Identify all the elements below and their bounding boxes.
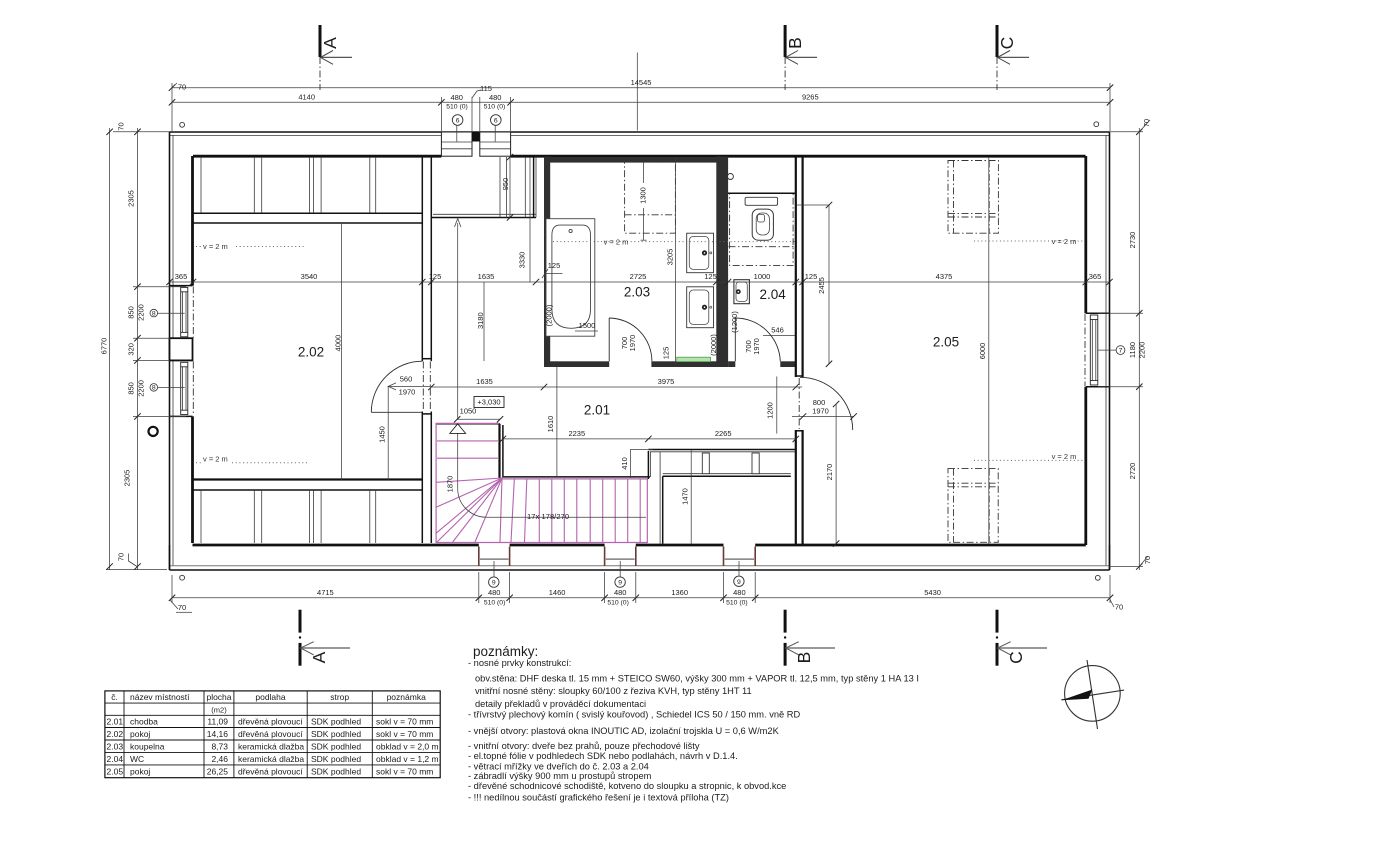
svg-text:2.05: 2.05: [933, 335, 959, 350]
svg-text:C: C: [1006, 651, 1026, 664]
svg-text:5430: 5430: [924, 588, 941, 597]
svg-text:850: 850: [127, 306, 136, 319]
svg-text:- třívrstvý plechový komín (: - třívrstvý plechový komín ( svislý kouř…: [468, 710, 801, 720]
svg-text:14,16: 14,16: [207, 729, 229, 739]
svg-text:obklad v = 1,2 m: obklad v = 1,2 m: [376, 754, 439, 764]
svg-text:2235: 2235: [568, 429, 585, 438]
svg-text:1610: 1610: [546, 416, 555, 433]
svg-text:2200: 2200: [137, 380, 146, 397]
svg-text:1870: 1870: [446, 476, 455, 493]
svg-text:sokl v = 70 mm: sokl v = 70 mm: [376, 717, 433, 727]
svg-text:podlaha: podlaha: [255, 692, 286, 702]
svg-text:- dřevěné schodnicové schodišt: - dřevěné schodnicové schodiště, kotveno…: [468, 781, 786, 791]
svg-text:1970: 1970: [628, 335, 637, 352]
svg-text:125: 125: [805, 272, 818, 281]
svg-text:sokl v = 70 mm: sokl v = 70 mm: [376, 767, 433, 777]
svg-text:480: 480: [488, 588, 501, 597]
svg-text:560: 560: [400, 375, 413, 384]
svg-text:6: 6: [456, 118, 460, 125]
svg-text:1200: 1200: [765, 402, 774, 419]
svg-text:480: 480: [489, 93, 502, 102]
svg-text:850: 850: [127, 382, 136, 395]
svg-text:- zábradlí výšky 900 mm u pro: - zábradlí výšky 900 mm u prostupů strop…: [468, 771, 652, 781]
svg-text:- vnitřní otvory: dveře bez pr: - vnitřní otvory: dveře bez prahů, pouze…: [468, 741, 700, 751]
svg-text:dřevěná plovoucí: dřevěná plovoucí: [238, 729, 303, 739]
svg-text:8: 8: [152, 385, 156, 392]
svg-text:(2000): (2000): [709, 334, 718, 356]
svg-text:3330: 3330: [517, 252, 526, 269]
svg-text:410: 410: [620, 457, 629, 470]
svg-text:+3,030: +3,030: [477, 398, 500, 407]
svg-text:1450: 1450: [377, 426, 386, 443]
svg-text:poznámka: poznámka: [387, 692, 426, 702]
svg-text:320: 320: [127, 343, 136, 356]
svg-text:detaily překladů v prováděcí d: detaily překladů v prováděcí dokumentaci: [475, 699, 646, 709]
svg-text:2455: 2455: [817, 277, 826, 294]
svg-text:6770: 6770: [100, 338, 109, 355]
svg-text:365: 365: [175, 272, 188, 281]
svg-text:- nosné prvky konstrukcí:: - nosné prvky konstrukcí:: [468, 658, 571, 668]
svg-text:2,46: 2,46: [211, 754, 228, 764]
svg-text:2305: 2305: [127, 190, 136, 207]
svg-text:(2000): (2000): [545, 304, 554, 326]
svg-text:strop: strop: [330, 692, 349, 702]
svg-text:v = 2 m: v = 2 m: [203, 455, 228, 464]
svg-text:950: 950: [501, 178, 510, 191]
svg-text:dřevěná plovoucí: dřevěná plovoucí: [238, 767, 303, 777]
svg-text:(m2): (m2): [211, 705, 227, 714]
svg-text:A: A: [309, 651, 329, 663]
svg-text:125: 125: [662, 347, 671, 360]
svg-text:2720: 2720: [1128, 463, 1137, 480]
svg-text:480: 480: [733, 588, 746, 597]
svg-text:keramická dlažba: keramická dlažba: [238, 754, 304, 764]
svg-text:4140: 4140: [298, 93, 315, 102]
svg-text:9265: 9265: [802, 93, 819, 102]
svg-text:8,73: 8,73: [211, 741, 228, 751]
svg-text:2.01: 2.01: [584, 403, 610, 418]
svg-text:1000: 1000: [754, 272, 771, 281]
svg-text:2.01: 2.01: [107, 717, 124, 727]
svg-text:3975: 3975: [658, 377, 675, 386]
svg-text:obv.stěna: DHF deska tl. 15 mm: obv.stěna: DHF deska tl. 15 mm + STEICO …: [475, 674, 919, 684]
svg-text:1635: 1635: [476, 377, 493, 386]
svg-text:WC: WC: [130, 754, 144, 764]
svg-text:dřevěná plovoucí: dřevěná plovoucí: [238, 717, 303, 727]
svg-text:- el.topné fólie v podhledech: - el.topné fólie v podhledech SDK nebo p…: [468, 751, 738, 761]
svg-text:č.: č.: [111, 692, 118, 702]
svg-text:keramická dlažba: keramická dlažba: [238, 741, 304, 751]
svg-text:70: 70: [178, 83, 186, 92]
svg-text:480: 480: [614, 588, 627, 597]
svg-text:- vnější otvory: plastová okna: - vnější otvory: plastová okna INOUTIC A…: [468, 726, 780, 736]
svg-text:3205: 3205: [666, 249, 675, 266]
svg-text:1970: 1970: [752, 338, 761, 355]
svg-text:B: B: [785, 37, 805, 49]
svg-text:pokoj: pokoj: [130, 767, 150, 777]
svg-text:poznámky:: poznámky:: [473, 644, 538, 659]
svg-text:115: 115: [480, 84, 492, 93]
svg-text:obklad v = 2,0 m: obklad v = 2,0 m: [376, 741, 439, 751]
svg-text:26,25: 26,25: [207, 767, 229, 777]
svg-text:4000: 4000: [334, 335, 343, 352]
svg-text:365: 365: [1089, 272, 1102, 281]
svg-text:2.03: 2.03: [107, 741, 124, 751]
svg-text:C: C: [997, 37, 1017, 50]
svg-text:SDK podhled: SDK podhled: [311, 717, 361, 727]
svg-text:2170: 2170: [825, 464, 834, 481]
svg-text:2.05: 2.05: [107, 767, 124, 777]
svg-text:koupelna: koupelna: [130, 741, 165, 751]
svg-text:v = 2 m: v = 2 m: [1052, 237, 1077, 246]
svg-text:11,09: 11,09: [207, 717, 228, 727]
svg-text:SDK podhled: SDK podhled: [311, 741, 361, 751]
svg-text:8: 8: [152, 310, 156, 317]
svg-text:1470: 1470: [680, 488, 689, 505]
svg-text:v = 2 m: v = 2 m: [203, 242, 228, 251]
svg-text:1180: 1180: [1128, 342, 1137, 358]
svg-text:chodba: chodba: [130, 717, 158, 727]
svg-text:510 (0): 510 (0): [446, 103, 468, 110]
svg-text:9: 9: [737, 579, 741, 586]
svg-text:1500: 1500: [579, 321, 596, 330]
svg-text:510 (0): 510 (0): [484, 600, 506, 607]
svg-text:125: 125: [548, 261, 561, 270]
svg-text:1460: 1460: [549, 588, 566, 597]
svg-text:125: 125: [704, 272, 717, 281]
svg-text:2730: 2730: [1128, 232, 1137, 249]
svg-text:2.04: 2.04: [107, 754, 124, 764]
svg-text:v = 2 m: v = 2 m: [1052, 452, 1077, 461]
svg-text:- větrací mřížky ve dveřích do: - větrací mřížky ve dveřích do č. 2.03 a…: [468, 761, 649, 771]
svg-text:3540: 3540: [301, 272, 318, 281]
svg-text:70: 70: [1115, 603, 1123, 612]
svg-text:6: 6: [494, 118, 498, 125]
svg-text:1360: 1360: [671, 588, 688, 597]
svg-text:plocha: plocha: [206, 692, 231, 702]
svg-text:(1200): (1200): [730, 311, 739, 333]
svg-text:2.03: 2.03: [624, 285, 650, 300]
svg-text:6000: 6000: [978, 343, 987, 360]
svg-text:4715: 4715: [317, 588, 334, 597]
svg-text:510 (0): 510 (0): [484, 103, 506, 110]
svg-text:SDK podhled: SDK podhled: [311, 754, 361, 764]
svg-text:70: 70: [117, 122, 126, 130]
svg-text:2200: 2200: [1138, 342, 1147, 359]
svg-text:510 (0): 510 (0): [726, 600, 748, 607]
svg-text:480: 480: [450, 93, 463, 102]
svg-text:14545: 14545: [631, 78, 652, 87]
svg-text:- !!! nedílnou součástí grafi: - !!! nedílnou součástí grafického řešen…: [468, 793, 729, 803]
svg-text:2.02: 2.02: [107, 729, 124, 739]
svg-text:1635: 1635: [478, 272, 495, 281]
svg-text:2200: 2200: [137, 304, 146, 321]
svg-text:9: 9: [492, 580, 496, 587]
svg-text:510 (0): 510 (0): [607, 600, 629, 607]
svg-text:SDK podhled: SDK podhled: [311, 729, 361, 739]
svg-text:2.04: 2.04: [759, 287, 786, 302]
svg-text:70: 70: [117, 553, 126, 561]
svg-text:A: A: [320, 37, 340, 49]
svg-text:9: 9: [618, 580, 622, 587]
svg-text:1970: 1970: [399, 387, 416, 396]
svg-text:1300: 1300: [639, 187, 648, 204]
svg-text:4375: 4375: [936, 272, 953, 281]
svg-text:70: 70: [178, 603, 186, 612]
svg-text:v = 2 m: v = 2 m: [604, 237, 629, 246]
svg-text:sokl v = 70 mm: sokl v = 70 mm: [376, 729, 433, 739]
svg-text:B: B: [794, 652, 814, 664]
svg-text:2725: 2725: [630, 272, 647, 281]
svg-text:2305: 2305: [123, 470, 132, 487]
svg-text:název místností: název místností: [130, 692, 190, 702]
svg-text:2.02: 2.02: [298, 345, 324, 360]
svg-text:SDK podhled: SDK podhled: [311, 767, 361, 777]
svg-text:2265: 2265: [715, 429, 732, 438]
svg-text:125: 125: [429, 272, 442, 281]
svg-text:7: 7: [1119, 347, 1123, 354]
svg-text:vnitřní nosné stěny: sloupky 6: vnitřní nosné stěny: sloupky 60/100 z ře…: [475, 686, 752, 696]
svg-text:3180: 3180: [476, 312, 485, 329]
svg-text:1970: 1970: [812, 406, 829, 415]
svg-text:546: 546: [771, 326, 784, 335]
svg-text:17x 178/270: 17x 178/270: [527, 512, 569, 521]
svg-text:pokoj: pokoj: [130, 729, 150, 739]
